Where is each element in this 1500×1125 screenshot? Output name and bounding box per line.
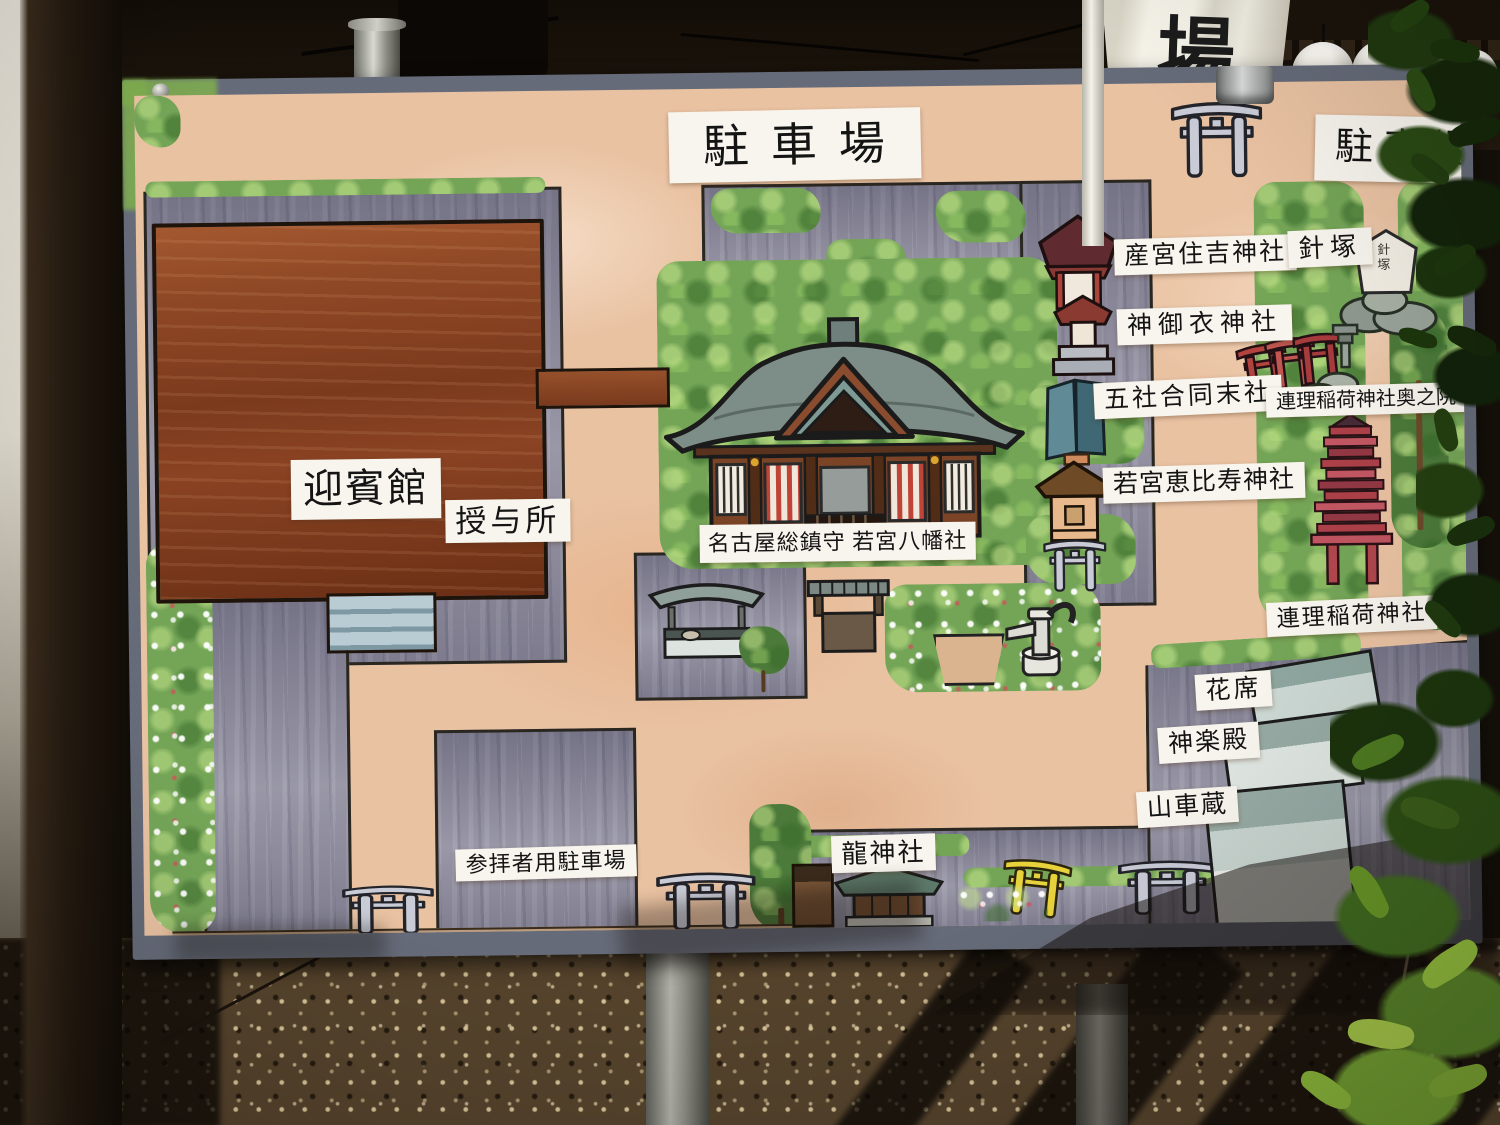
label-wakamiya-ebisu: 若宮恵比寿神社	[1103, 462, 1306, 504]
cast-shadow	[790, 938, 1034, 1125]
bucket	[933, 633, 1006, 686]
flower-speckles	[956, 885, 1048, 922]
shrine-map-signboard: 針塚	[122, 64, 1483, 960]
vegetation-patch	[710, 187, 821, 233]
support-pole-cap	[348, 18, 406, 31]
label-geihinkan: 迎賓館	[291, 458, 442, 520]
photo-scene: 針塚	[0, 0, 1500, 1125]
signboard-leg-center	[646, 946, 710, 1125]
lantern-wire	[1322, 24, 1325, 44]
banner-pole	[1082, 0, 1104, 246]
signboard-left-post	[20, 0, 122, 1125]
vegetation-patch	[935, 190, 1026, 243]
torii-gate-top-path	[1164, 94, 1269, 179]
hedge-foliage-middle	[1416, 220, 1500, 740]
geihinkan-entrance-steps	[326, 592, 437, 653]
sapling-trunk	[761, 670, 765, 692]
label-visitor-parking: 参拝者用駐車場	[455, 844, 637, 882]
branch	[680, 33, 979, 62]
well-structure	[806, 579, 891, 656]
label-gosha-godo-massha: 五社合同末社	[1093, 375, 1283, 420]
shrine-grounds-map: 針塚	[134, 80, 1470, 936]
label-kamimiso: 神御衣神社	[1117, 304, 1293, 345]
renri-inari-torii-tower	[1296, 410, 1406, 587]
geihinkan-building	[152, 219, 549, 604]
label-main-shrine: 名古屋総鎮守 若宮八幡社	[699, 522, 975, 564]
mounting-clamp	[1216, 66, 1274, 104]
tree-shadow-on-board	[175, 925, 385, 963]
torii-gate-shrine-row	[1034, 534, 1117, 593]
vegetation-patch	[134, 95, 181, 148]
label-ryu-jinja: 龍神社	[831, 833, 936, 873]
label-ubumiya-sumiyoshi: 産宮住吉神社	[1114, 234, 1297, 275]
label-dashi-gura: 山車蔵	[1136, 786, 1239, 828]
label-parking-top: 駐車場	[668, 107, 921, 183]
label-harizuka: 針塚	[1287, 227, 1373, 268]
label-kaseki: 花席	[1194, 670, 1272, 711]
label-juyosho: 授与所	[445, 499, 571, 544]
kamimiso-shrine-icon	[1045, 290, 1122, 377]
label-renri-inari: 連理稲荷神社	[1266, 595, 1437, 637]
connecting-corridor	[536, 367, 670, 409]
label-kagura-den: 神楽殿	[1157, 722, 1260, 764]
visitor-parking-area	[434, 728, 639, 936]
